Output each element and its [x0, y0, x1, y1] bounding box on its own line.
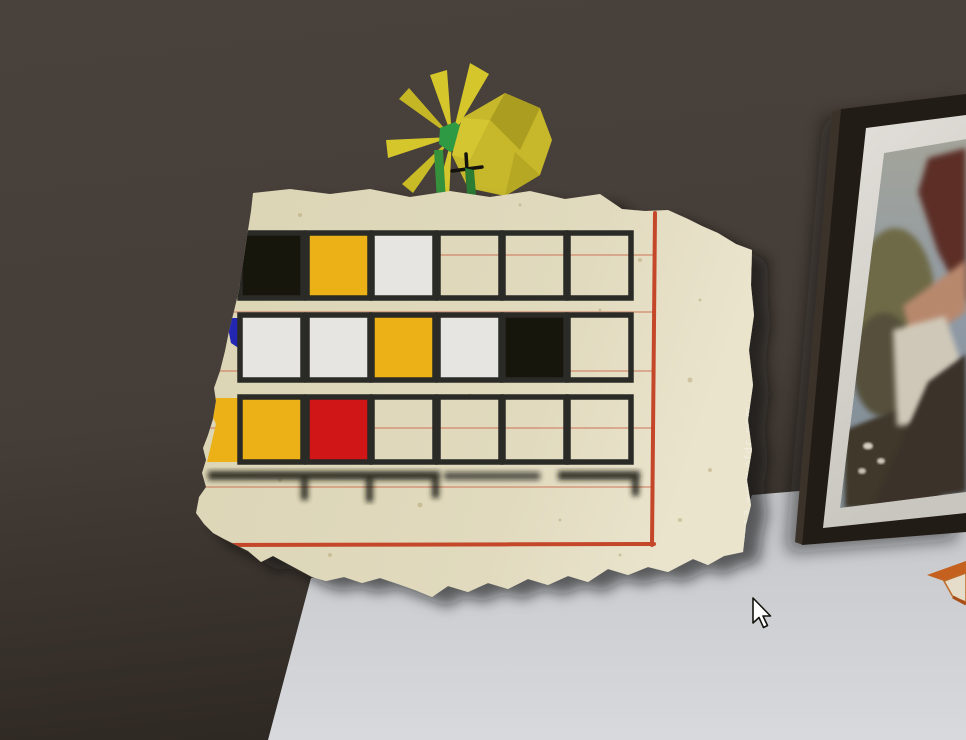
grid-cell-r3c2-red — [307, 397, 370, 462]
grid-cell-r2c1-white — [240, 315, 303, 380]
grid-cell-r2c3-yellow — [372, 315, 435, 380]
grid-cell-r2c5-black — [503, 315, 566, 380]
grid-cell-r3c1-yellow — [240, 397, 303, 462]
grid-cell-r2c4-white — [438, 315, 501, 380]
grid-cell-r2c2-white — [307, 315, 370, 380]
game-scene-canvas: E113 www.ofdc.com — [0, 0, 966, 740]
grid-cell-r1c1-black — [240, 233, 303, 298]
grid-cell-r1c2-yellow — [307, 233, 370, 298]
grid-cell-r1c3-white — [372, 233, 435, 298]
